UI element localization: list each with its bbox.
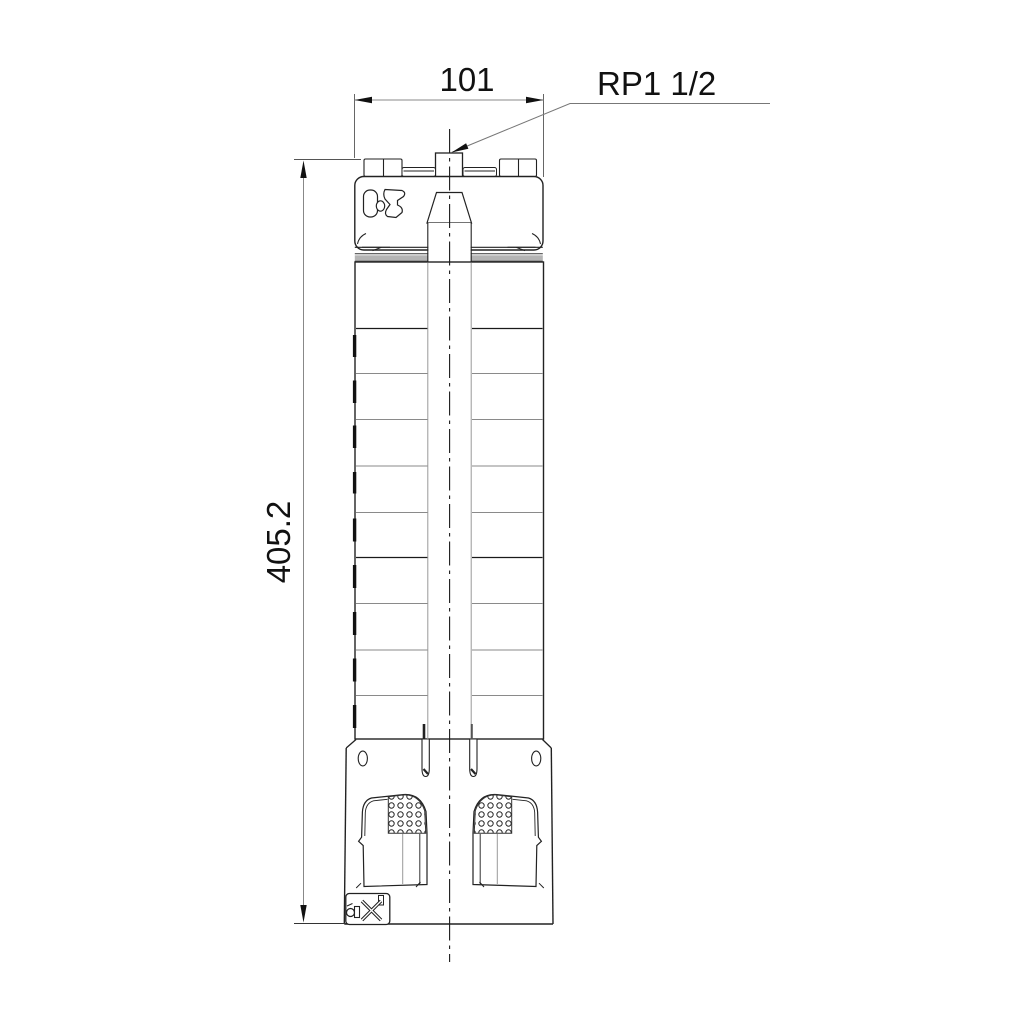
arrowhead-right-icon xyxy=(526,97,544,103)
top-plate-right xyxy=(463,168,497,177)
chamber-hole-left xyxy=(358,751,367,766)
top-boss-right xyxy=(500,159,537,177)
height-dimension-label: 405.2 xyxy=(260,501,297,584)
width-dimension-label: 101 xyxy=(439,61,494,98)
arrowhead-down-icon xyxy=(300,905,306,923)
top-boss-left xyxy=(364,159,402,177)
technical-drawing-canvas: 101 405.2 RP1 1/2 xyxy=(0,0,1024,1024)
arrowhead-up-icon xyxy=(300,161,306,179)
top-plate-left xyxy=(402,168,436,177)
arrowhead-left-icon xyxy=(355,97,373,103)
intake-window-left xyxy=(356,795,427,888)
connection-label: RP1 1/2 xyxy=(597,65,716,102)
leader-arrowhead-icon xyxy=(452,143,469,152)
leader-line xyxy=(452,104,771,153)
intake-window-right xyxy=(473,795,544,888)
connection-callout: RP1 1/2 xyxy=(452,65,771,153)
manufacturer-stamp-icon xyxy=(346,894,390,925)
pump-dimensional-drawing: 101 405.2 RP1 1/2 xyxy=(0,0,1024,1024)
chamber-hole-right xyxy=(532,751,541,766)
pump-outline xyxy=(344,153,553,925)
discharge-port-stub xyxy=(436,153,463,177)
